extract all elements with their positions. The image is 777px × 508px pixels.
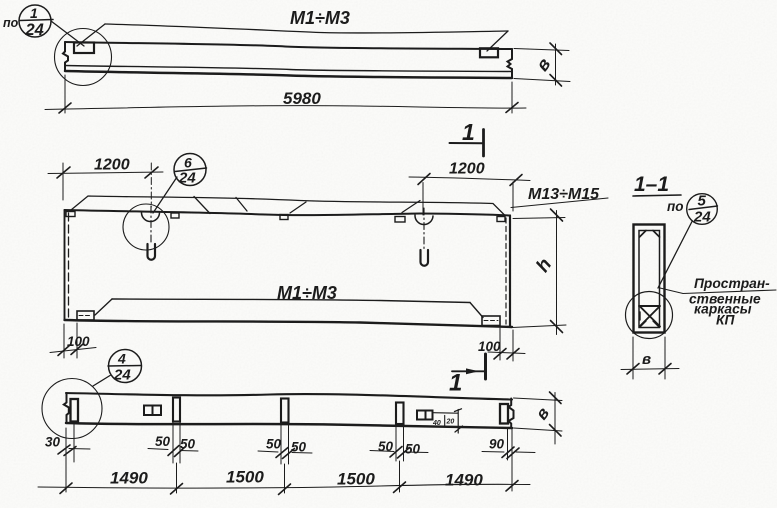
svg-text:по: по	[3, 16, 19, 30]
svg-text:5: 5	[698, 193, 707, 210]
svg-text:по: по	[667, 199, 684, 214]
svg-text:1200: 1200	[449, 161, 485, 178]
svg-text:30: 30	[45, 435, 61, 450]
svg-text:1490: 1490	[110, 469, 148, 488]
svg-text:4: 4	[117, 351, 126, 367]
svg-text:50: 50	[378, 439, 394, 454]
svg-text:Простран-: Простран-	[694, 276, 770, 291]
svg-text:М13÷М15: М13÷М15	[528, 186, 600, 203]
svg-text:1: 1	[30, 5, 38, 21]
svg-text:40: 40	[432, 420, 441, 427]
svg-text:24: 24	[113, 367, 131, 384]
svg-text:24: 24	[25, 21, 44, 39]
svg-text:100: 100	[478, 339, 501, 354]
svg-text:50: 50	[291, 440, 307, 455]
svg-text:100: 100	[67, 334, 90, 349]
svg-text:КП: КП	[716, 313, 735, 328]
svg-text:6: 6	[184, 155, 192, 171]
svg-text:1200: 1200	[94, 157, 130, 174]
svg-text:М1÷М3: М1÷М3	[290, 8, 350, 28]
svg-text:20: 20	[446, 419, 455, 426]
svg-text:М1÷М3: М1÷М3	[277, 283, 337, 303]
svg-text:в: в	[642, 351, 651, 368]
svg-text:24: 24	[178, 170, 196, 187]
svg-text:50: 50	[155, 434, 171, 449]
svg-text:1–1: 1–1	[634, 173, 669, 196]
svg-text:50: 50	[266, 437, 282, 452]
svg-text:1: 1	[449, 370, 462, 397]
svg-text:50: 50	[405, 442, 421, 457]
svg-text:1490: 1490	[445, 471, 483, 490]
svg-text:1500: 1500	[337, 470, 375, 489]
svg-text:50: 50	[180, 437, 196, 452]
svg-text:24: 24	[693, 209, 711, 226]
svg-text:1500: 1500	[226, 468, 264, 487]
svg-text:90: 90	[489, 437, 505, 452]
svg-text:1: 1	[462, 119, 475, 145]
svg-text:5980: 5980	[283, 89, 321, 108]
